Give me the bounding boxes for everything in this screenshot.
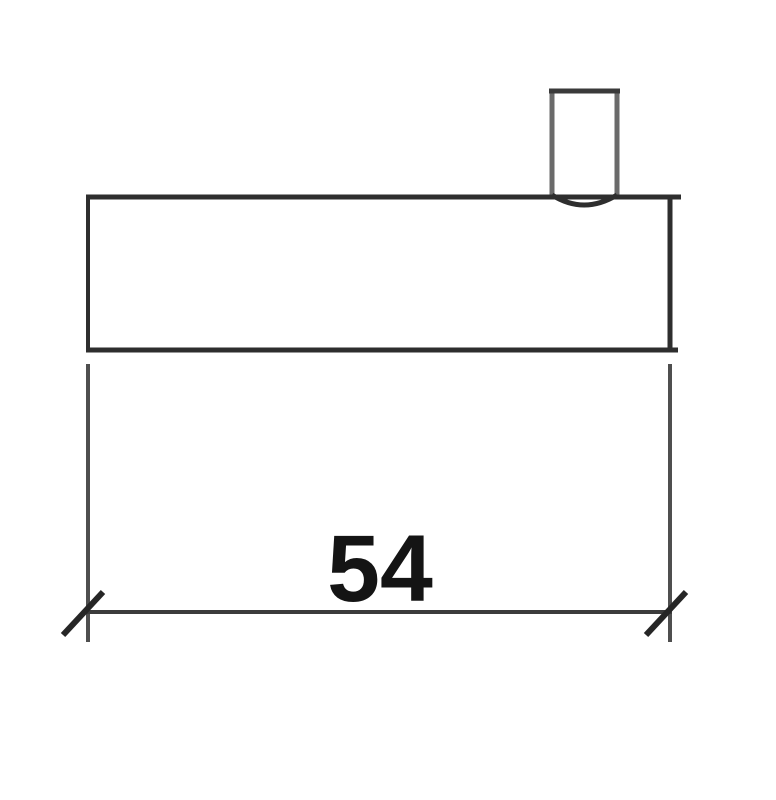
part-front-view: 54 [0, 0, 776, 800]
dimension-annotation: 54 [63, 364, 686, 642]
body-outline [86, 195, 681, 352]
dimension-value-label: 54 [327, 516, 433, 622]
boss-outline [549, 91, 620, 205]
technical-drawing-canvas: 54 [0, 0, 776, 800]
